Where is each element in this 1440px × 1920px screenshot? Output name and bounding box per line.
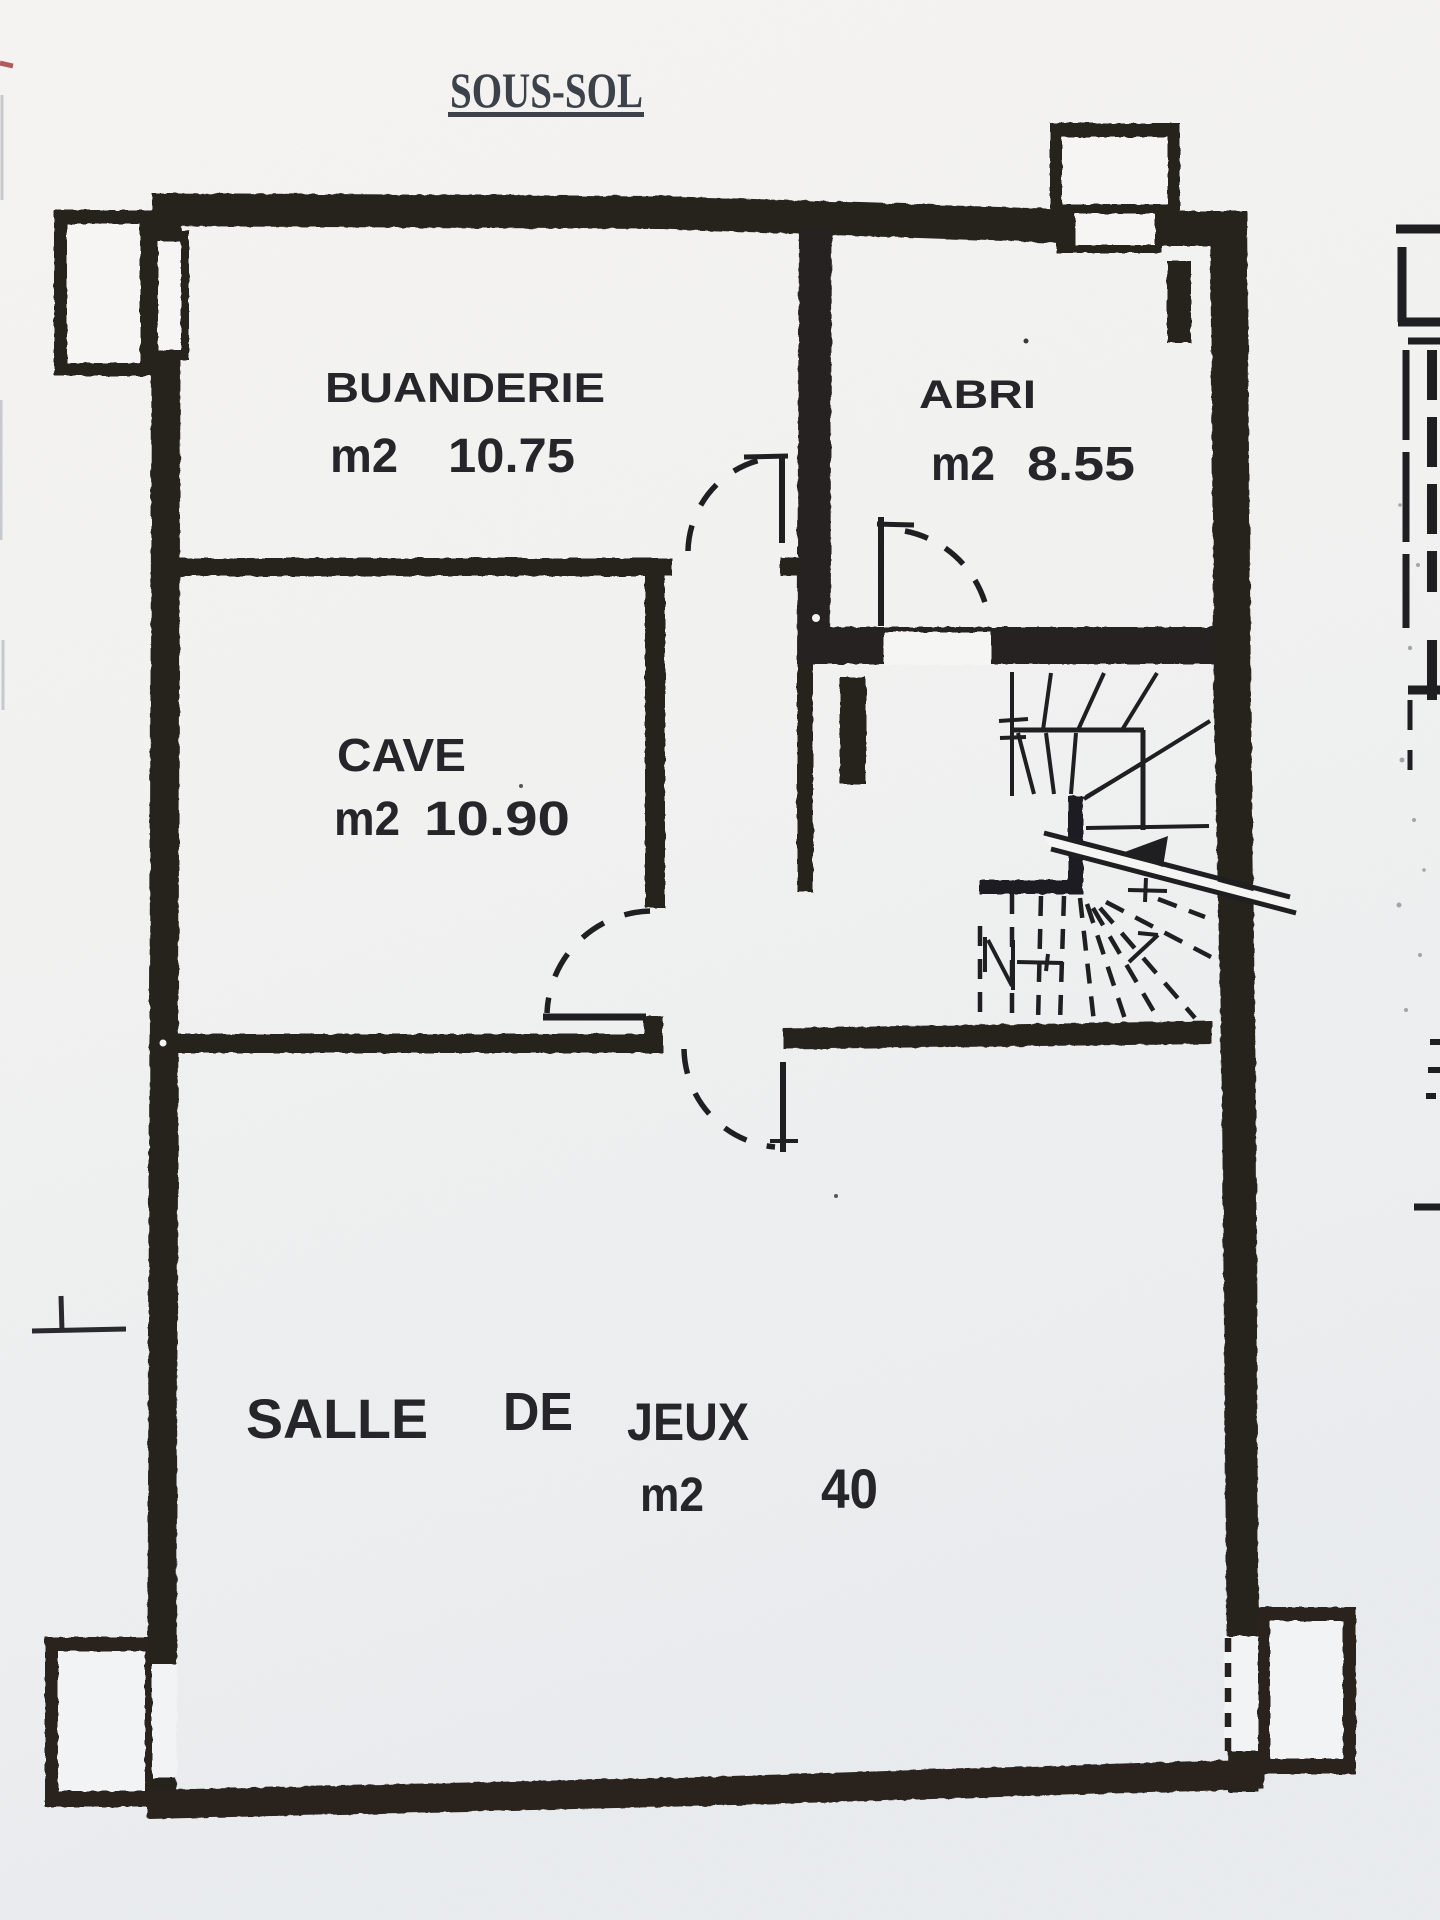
svg-text:CAVE: CAVE xyxy=(337,729,466,781)
svg-text:SALLE: SALLE xyxy=(246,1387,428,1450)
svg-text:m2: m2 xyxy=(330,430,398,483)
svg-text:10.75: 10.75 xyxy=(448,430,575,483)
svg-text:8.55: 8.55 xyxy=(1027,438,1135,491)
svg-text:ABRI: ABRI xyxy=(919,373,1036,417)
svg-text:SOUS-SOL: SOUS-SOL xyxy=(450,62,643,118)
svg-text:BUANDERIE: BUANDERIE xyxy=(325,364,605,411)
svg-text:m2: m2 xyxy=(334,793,400,846)
svg-text:DE: DE xyxy=(503,1382,573,1442)
svg-text:m2: m2 xyxy=(931,438,995,491)
svg-text:m2: m2 xyxy=(640,1469,704,1522)
svg-text:10.90: 10.90 xyxy=(424,793,570,846)
svg-text:40: 40 xyxy=(821,1457,878,1520)
svg-text:JEUX: JEUX xyxy=(627,1393,749,1452)
